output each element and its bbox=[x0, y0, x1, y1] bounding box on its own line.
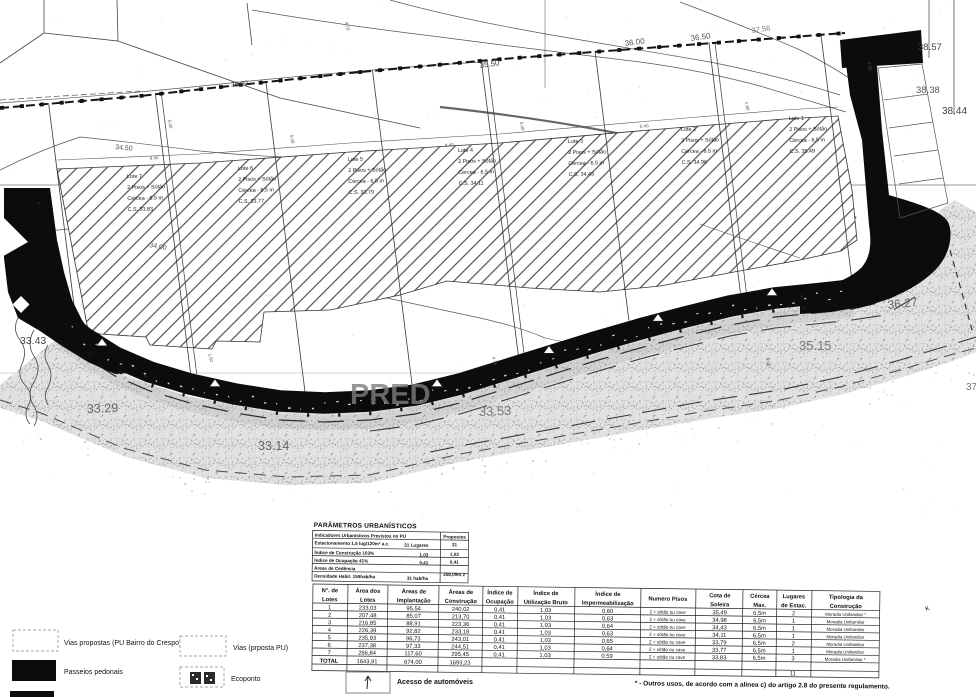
svg-text:Moradia Unifamiliar: Moradia Unifamiliar bbox=[827, 619, 865, 625]
svg-text:Propostos: Propostos bbox=[443, 534, 466, 539]
svg-text:2: 2 bbox=[328, 613, 331, 619]
svg-text:0,41: 0,41 bbox=[494, 607, 505, 613]
svg-text:6,5m: 6,5m bbox=[753, 626, 766, 632]
svg-text:Área dos: Área dos bbox=[355, 588, 380, 595]
svg-text:95,54: 95,54 bbox=[406, 606, 421, 612]
svg-text:C.S. 34.43: C.S. 34.43 bbox=[569, 172, 595, 178]
svg-text:C.S. 34.11: C.S. 34.11 bbox=[459, 181, 484, 187]
svg-text:1,03: 1,03 bbox=[539, 645, 550, 651]
svg-text:1,03: 1,03 bbox=[540, 623, 551, 629]
svg-text:0,41: 0,41 bbox=[494, 615, 505, 621]
svg-text:2 Pisos + Sótão: 2 Pisos + Sótão bbox=[348, 167, 386, 174]
svg-text:Vias propostas (PU Bairro do C: Vias propostas (PU Bairro do Crespo) bbox=[64, 640, 181, 647]
svg-text:2: 2 bbox=[792, 611, 795, 617]
svg-text:295,45: 295,45 bbox=[451, 652, 469, 658]
svg-text:2 + sótão ou cave: 2 + sótão ou cave bbox=[649, 609, 686, 614]
svg-text:2 Pisos + Sótão: 2 Pisos + Sótão bbox=[789, 126, 827, 133]
svg-text:Lotes: Lotes bbox=[360, 598, 376, 604]
svg-text:6,5m: 6,5m bbox=[753, 656, 766, 662]
svg-text:Construção: Construção bbox=[445, 599, 478, 605]
svg-text:233,18: 233,18 bbox=[451, 629, 469, 635]
svg-text:6,5m: 6,5m bbox=[753, 641, 766, 647]
svg-text:C.S. 33.79: C.S. 33.79 bbox=[349, 190, 375, 196]
svg-text:Estacionamento 1,5 lug/120m² a: Estacionamento 1,5 lug/120m² a.c. bbox=[315, 540, 390, 546]
svg-text:0,65: 0,65 bbox=[602, 639, 613, 645]
svg-text:1.50: 1.50 bbox=[867, 62, 873, 72]
svg-text:Cércea: Cércea bbox=[750, 594, 770, 600]
svg-text:266,84: 266,84 bbox=[358, 651, 377, 657]
svg-text:1: 1 bbox=[792, 634, 795, 640]
svg-text:2 Pisos + Sótão: 2 Pisos + Sótão bbox=[681, 137, 719, 144]
svg-text:3: 3 bbox=[328, 620, 331, 626]
svg-text:2 Pisos + Sótão: 2 Pisos + Sótão bbox=[458, 158, 496, 165]
svg-text:33.29: 33.29 bbox=[87, 401, 119, 416]
svg-text:Numero Pisos: Numero Pisos bbox=[648, 596, 687, 603]
svg-text:Moradia Unifamiliar: Moradia Unifamiliar bbox=[826, 649, 864, 655]
svg-text:6,5m: 6,5m bbox=[753, 648, 766, 654]
svg-text:97,33: 97,33 bbox=[406, 644, 421, 650]
svg-text:0,64: 0,64 bbox=[601, 646, 613, 652]
svg-text:1,03: 1,03 bbox=[540, 638, 551, 644]
svg-text:Cércea - 6.5 m: Cércea - 6.5 m bbox=[681, 148, 717, 155]
svg-text:Moradia Unifamiliar: Moradia Unifamiliar bbox=[826, 642, 864, 648]
svg-text:Construção: Construção bbox=[830, 604, 863, 610]
svg-text:6: 6 bbox=[328, 643, 331, 649]
svg-text:0,59: 0,59 bbox=[601, 654, 612, 660]
svg-text:1,03: 1,03 bbox=[450, 552, 459, 557]
svg-text:C.S. 34.96: C.S. 34.96 bbox=[682, 160, 708, 166]
svg-text:235,93: 235,93 bbox=[358, 636, 376, 642]
svg-text:33,83: 33,83 bbox=[712, 655, 727, 661]
svg-text:2 + sótão ou cave: 2 + sótão ou cave bbox=[649, 632, 686, 637]
svg-text:Soleira: Soleira bbox=[710, 602, 730, 608]
svg-text:117,60: 117,60 bbox=[404, 651, 421, 657]
svg-text:0,41: 0,41 bbox=[493, 645, 504, 651]
svg-text:38.44: 38.44 bbox=[942, 106, 967, 117]
svg-text:0.40: 0.40 bbox=[640, 123, 650, 129]
svg-text:2 + sótão ou cave: 2 + sótão ou cave bbox=[649, 647, 686, 652]
svg-text:37: 37 bbox=[966, 382, 976, 393]
svg-text:Cércea - 6.5 m: Cércea - 6.5 m bbox=[348, 178, 384, 185]
svg-text:Implantação: Implantação bbox=[397, 598, 431, 604]
svg-text:243,01: 243,01 bbox=[451, 637, 469, 643]
svg-text:2 Pisos + Sótão: 2 Pisos + Sótão bbox=[238, 176, 276, 183]
svg-text:0,41: 0,41 bbox=[419, 560, 428, 565]
svg-text:34,11: 34,11 bbox=[712, 633, 726, 639]
svg-text:C.S. 35.49: C.S. 35.49 bbox=[790, 149, 816, 155]
svg-text:38.38: 38.38 bbox=[916, 85, 940, 96]
svg-text:33.14: 33.14 bbox=[258, 439, 289, 453]
svg-text:34,43: 34,43 bbox=[712, 625, 727, 631]
svg-text:21 Lugares: 21 Lugares bbox=[404, 543, 429, 548]
svg-text:0,41: 0,41 bbox=[494, 630, 505, 636]
svg-text:1,03: 1,03 bbox=[540, 630, 551, 636]
svg-text:1: 1 bbox=[791, 649, 794, 655]
svg-text:92,82: 92,82 bbox=[406, 629, 421, 635]
svg-text:21: 21 bbox=[452, 542, 458, 547]
svg-text:0,41: 0,41 bbox=[494, 622, 505, 628]
svg-text:0,41: 0,41 bbox=[494, 637, 505, 643]
svg-text:Cota de: Cota de bbox=[709, 593, 731, 599]
svg-text:Lote 3: Lote 3 bbox=[568, 139, 583, 145]
svg-text:33,79: 33,79 bbox=[712, 640, 727, 646]
svg-text:33.43: 33.43 bbox=[20, 335, 46, 347]
svg-text:Lugares: Lugares bbox=[783, 594, 806, 600]
svg-text:213,70: 213,70 bbox=[452, 614, 470, 620]
svg-text:Lote 4: Lote 4 bbox=[458, 148, 473, 154]
svg-text:N°. de: N°. de bbox=[322, 588, 339, 594]
svg-text:33,77: 33,77 bbox=[712, 648, 727, 654]
svg-text:Lote 7: Lote 7 bbox=[127, 174, 142, 180]
svg-text:Cércea - 6.5 m: Cércea - 6.5 m bbox=[127, 195, 163, 202]
svg-text:11: 11 bbox=[790, 671, 796, 677]
svg-text:1,03: 1,03 bbox=[419, 552, 428, 557]
svg-text:38.57: 38.57 bbox=[918, 42, 942, 53]
svg-text:Áreas de: Áreas de bbox=[449, 589, 474, 596]
svg-text:358,09m 2: 358,09m 2 bbox=[443, 572, 465, 577]
svg-text:C.S. 33.77: C.S. 33.77 bbox=[239, 199, 265, 205]
svg-text:Acesso de automóveis: Acesso de automóveis bbox=[397, 679, 473, 686]
svg-text:1,03: 1,03 bbox=[540, 615, 551, 621]
svg-text:2 Pisos + Sótão: 2 Pisos + Sótão bbox=[568, 149, 606, 156]
svg-text:0,41: 0,41 bbox=[450, 560, 459, 565]
svg-text:Vias (prposta PU): Vias (prposta PU) bbox=[233, 645, 288, 652]
svg-text:240,02: 240,02 bbox=[452, 607, 470, 613]
svg-text:2 + sótão ou cave: 2 + sótão ou cave bbox=[649, 654, 686, 659]
svg-text:Cércea - 6.5 m: Cércea - 6.5 m bbox=[238, 187, 274, 194]
svg-text:Lote 2: Lote 2 bbox=[681, 127, 696, 133]
svg-text:1: 1 bbox=[792, 619, 795, 625]
svg-text:2 + sótão ou cave: 2 + sótão ou cave bbox=[649, 617, 686, 622]
svg-text:0,60: 0,60 bbox=[602, 609, 613, 615]
svg-text:Tipologia da: Tipologia da bbox=[829, 595, 864, 601]
svg-text:6,5m: 6,5m bbox=[753, 611, 766, 617]
svg-text:Densidade Habit. 155hab/ha: Densidade Habit. 155hab/ha bbox=[314, 574, 376, 580]
svg-text:85,07: 85,07 bbox=[406, 614, 421, 620]
svg-text:Max.: Max. bbox=[753, 603, 766, 609]
svg-text:88,91: 88,91 bbox=[406, 621, 421, 627]
svg-text:Ecoponto: Ecoponto bbox=[231, 676, 261, 683]
svg-text:Cércea - 6.5 m: Cércea - 6.5 m bbox=[789, 137, 825, 144]
svg-text:Lote 5: Lote 5 bbox=[348, 157, 363, 163]
svg-text:Moradia Unifamiliar: Moradia Unifamiliar bbox=[826, 634, 864, 640]
svg-text:de Estac.: de Estac. bbox=[781, 603, 807, 609]
svg-text:0,63: 0,63 bbox=[602, 616, 613, 622]
svg-text:1: 1 bbox=[328, 605, 331, 611]
svg-text:674,00: 674,00 bbox=[404, 660, 422, 666]
svg-text:Passeios pedonais: Passeios pedonais bbox=[64, 669, 123, 676]
svg-text:TOTAL: TOTAL bbox=[320, 659, 339, 665]
svg-text:244,51: 244,51 bbox=[451, 644, 469, 650]
svg-text:6,5m: 6,5m bbox=[753, 618, 766, 624]
svg-text:2 Pisos + Sótão: 2 Pisos + Sótão bbox=[127, 184, 165, 191]
svg-text:Lote 6: Lote 6 bbox=[238, 166, 253, 172]
svg-text:Ocupação: Ocupação bbox=[486, 599, 515, 605]
svg-text:0,41: 0,41 bbox=[493, 652, 504, 658]
svg-text:34,98: 34,98 bbox=[712, 618, 727, 624]
svg-text:31 hab/ha: 31 hab/ha bbox=[407, 576, 429, 581]
svg-text:216,85: 216,85 bbox=[359, 621, 377, 627]
svg-text:6,5m: 6,5m bbox=[753, 633, 766, 639]
svg-text:Cércea - 6.5 m: Cércea - 6.5 m bbox=[458, 169, 494, 176]
svg-text:Impermeabilização: Impermeabilização bbox=[582, 601, 634, 608]
svg-text:Moradia Unifamiliar *: Moradia Unifamiliar * bbox=[825, 657, 866, 663]
svg-text:1,03: 1,03 bbox=[540, 608, 551, 614]
svg-text:1693,23: 1693,23 bbox=[449, 660, 470, 666]
svg-text:2 + sótão ou cave: 2 + sótão ou cave bbox=[649, 639, 686, 644]
svg-text:96,73: 96,73 bbox=[406, 636, 421, 642]
svg-text:1643,91: 1643,91 bbox=[356, 659, 377, 665]
svg-text:223,36: 223,36 bbox=[452, 622, 470, 628]
svg-text:233,03: 233,03 bbox=[359, 606, 377, 612]
svg-text:C.S. 33.83: C.S. 33.83 bbox=[128, 207, 154, 213]
svg-text:237,38: 237,38 bbox=[358, 643, 376, 649]
svg-text:1: 1 bbox=[792, 626, 795, 632]
svg-text:2: 2 bbox=[792, 641, 795, 647]
svg-text:35,49: 35,49 bbox=[712, 610, 727, 616]
svg-text:Lote 1: Lote 1 bbox=[789, 116, 804, 122]
svg-text:7: 7 bbox=[327, 650, 330, 656]
svg-text:0,64: 0,64 bbox=[602, 624, 614, 630]
svg-text:3: 3 bbox=[791, 656, 794, 662]
svg-text:9.40: 9.40 bbox=[445, 142, 455, 148]
svg-text:PRED: PRED bbox=[350, 379, 431, 411]
svg-text:Lotes: Lotes bbox=[322, 597, 338, 603]
svg-text:Moradia Unifamiliar: Moradia Unifamiliar bbox=[827, 627, 865, 633]
svg-text:Moradia Unifamiliar *: Moradia Unifamiliar * bbox=[825, 612, 866, 618]
svg-text:5: 5 bbox=[328, 635, 331, 641]
svg-text:2 + sótão ou cave: 2 + sótão ou cave bbox=[649, 624, 686, 629]
svg-text:Áreas de Cedência: Áreas de Cedência bbox=[314, 565, 356, 572]
svg-text:1,03: 1,03 bbox=[539, 653, 550, 659]
svg-text:Utilização Bruto: Utilização Bruto bbox=[524, 600, 569, 607]
svg-text:Cércea - 6.5 m: Cércea - 6.5 m bbox=[568, 160, 604, 167]
svg-text:226,39: 226,39 bbox=[358, 628, 376, 634]
svg-text:Áreas de: Áreas de bbox=[402, 588, 427, 595]
svg-text:0,63: 0,63 bbox=[602, 631, 613, 637]
svg-text:9.40: 9.40 bbox=[150, 155, 160, 161]
svg-text:35.15: 35.15 bbox=[799, 338, 832, 353]
svg-text:207,48: 207,48 bbox=[359, 613, 377, 619]
